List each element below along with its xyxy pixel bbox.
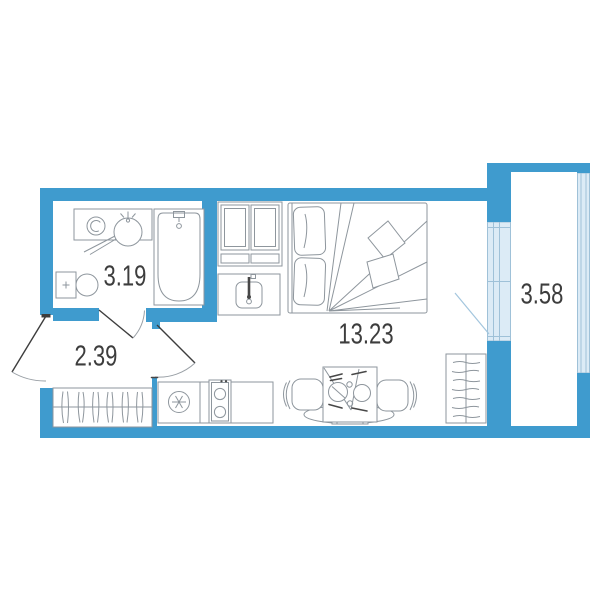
bed	[288, 203, 427, 313]
balcony-exterior-window	[578, 173, 590, 373]
floor-plan: 3.19 2.39 13.23 3.58	[0, 0, 600, 600]
bathroom-door	[99, 310, 145, 338]
chair-right	[377, 380, 417, 411]
hall-wardrobe	[53, 388, 152, 427]
stove	[209, 380, 231, 423]
room-label-living-room: 13.23	[338, 319, 393, 352]
dining-table	[284, 367, 417, 424]
wardrobe	[218, 202, 282, 266]
kitchen-sink-unit	[218, 274, 280, 315]
room-label-hallway: 2.39	[75, 341, 118, 374]
living-room-door	[152, 325, 196, 378]
balcony-divider-window	[488, 222, 511, 341]
room-label-bathroom: 3.19	[104, 261, 147, 294]
balcony-door-swing-line	[455, 293, 489, 334]
floor-plan-drawing	[0, 0, 600, 600]
bathtub	[154, 209, 204, 305]
entrance-door	[12, 314, 51, 381]
toilet	[56, 272, 98, 298]
chair-left	[284, 379, 324, 410]
room-label-balcony: 3.58	[521, 279, 564, 312]
radiator	[446, 354, 486, 423]
